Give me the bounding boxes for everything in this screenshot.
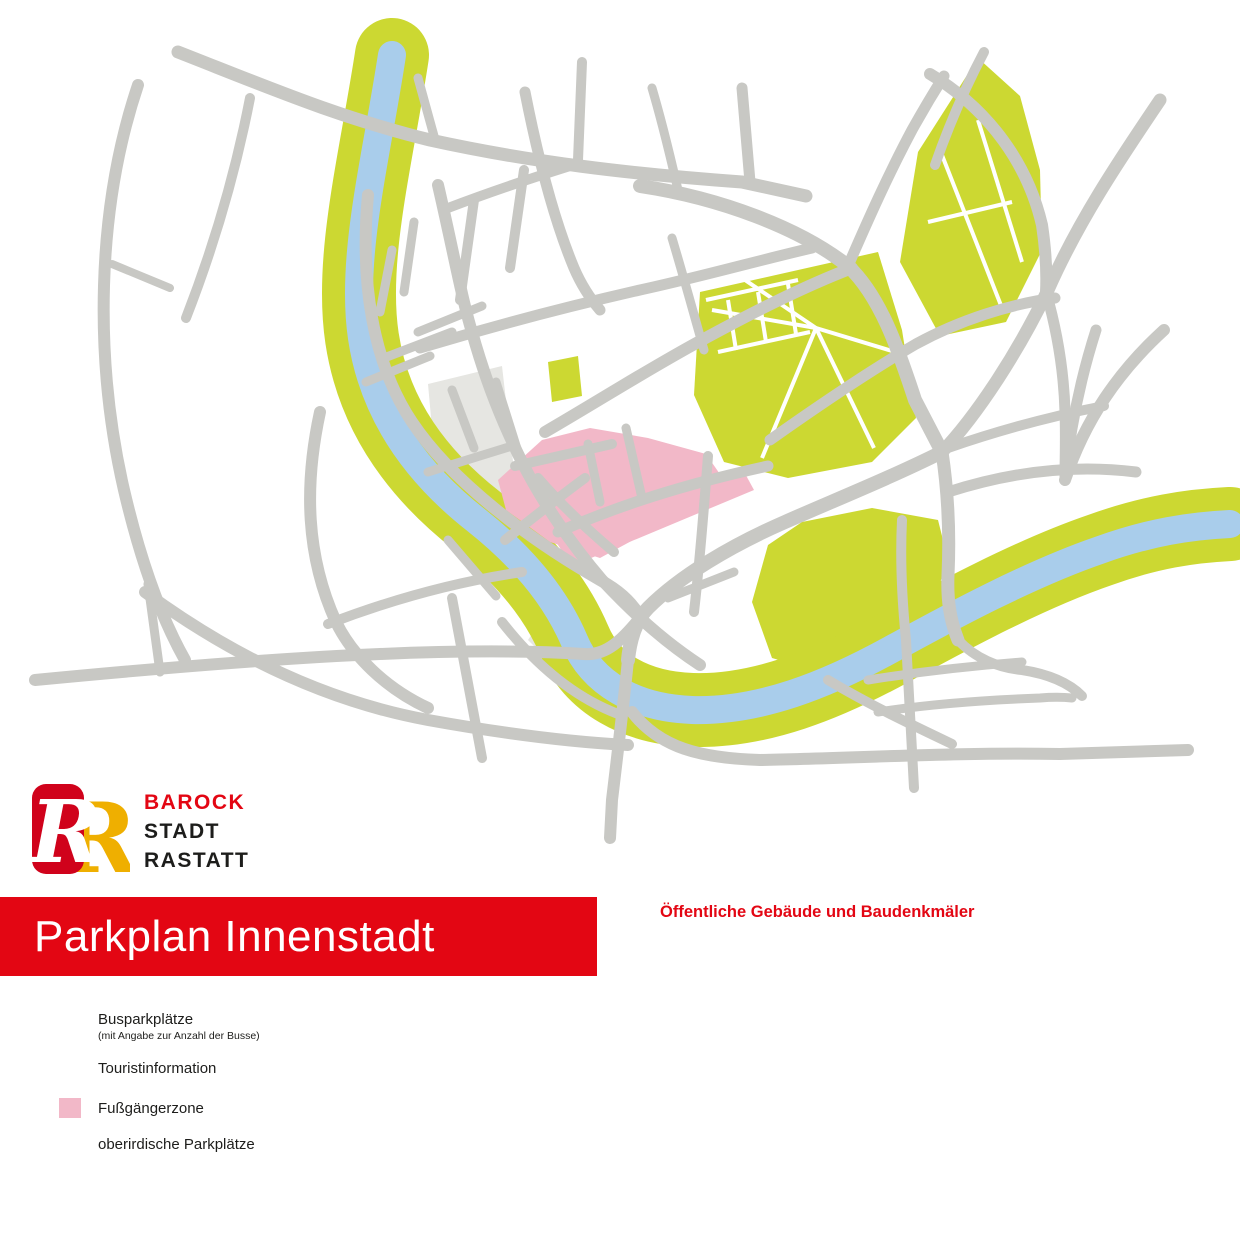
bus-parking-icon xyxy=(42,1009,98,1039)
legend-label: Fußgängerzone xyxy=(98,1097,204,1117)
title-bar: Parkplan Innenstadt xyxy=(0,897,597,976)
logo-line1: BAROCK xyxy=(144,788,249,817)
road xyxy=(942,452,958,640)
legend-item-parking: oberirdische Parkplätze xyxy=(42,1133,260,1156)
road xyxy=(112,264,170,288)
pedestrian-zone-swatch xyxy=(59,1098,81,1118)
road xyxy=(178,52,806,196)
legend-label: oberirdische Parkplätze xyxy=(98,1133,255,1153)
legend-label: Touristinformation xyxy=(98,1057,216,1077)
legend: Busparkplätze (mit Angabe zur Anzahl der… xyxy=(42,1008,260,1171)
road xyxy=(104,85,185,660)
legend-label: Busparkplätze xyxy=(98,1008,260,1028)
legend-item-pedestrian: Fußgängerzone xyxy=(42,1097,260,1118)
svg-text:R: R xyxy=(30,782,101,883)
buildings-heading: Öffentliche Gebäude und Baudenkmäler xyxy=(660,903,974,922)
road xyxy=(672,238,704,350)
tourist-info-icon xyxy=(58,1058,82,1082)
logo-mark-icon: R R xyxy=(30,776,130,886)
logo-line2: STADT xyxy=(144,817,249,846)
road xyxy=(186,98,250,318)
road xyxy=(525,92,600,310)
new-britain-park xyxy=(548,356,582,402)
legend-item-info: Touristinformation xyxy=(42,1057,260,1082)
road xyxy=(742,88,750,182)
legend-sublabel: (mit Angabe zur Anzahl der Busse) xyxy=(98,1030,260,1042)
parking-icon xyxy=(59,1134,81,1156)
road xyxy=(578,62,582,160)
road xyxy=(948,469,1136,492)
page-title: Parkplan Innenstadt xyxy=(0,912,435,962)
city-logo: R R BAROCK STADT RASTATT xyxy=(30,776,249,886)
road xyxy=(460,200,474,300)
city-map xyxy=(0,0,1240,897)
logo-line3: RASTATT xyxy=(144,846,249,875)
legend-item-bus: Busparkplätze (mit Angabe zur Anzahl der… xyxy=(42,1008,260,1042)
road xyxy=(452,598,482,758)
road xyxy=(1046,292,1065,480)
road xyxy=(404,222,414,292)
